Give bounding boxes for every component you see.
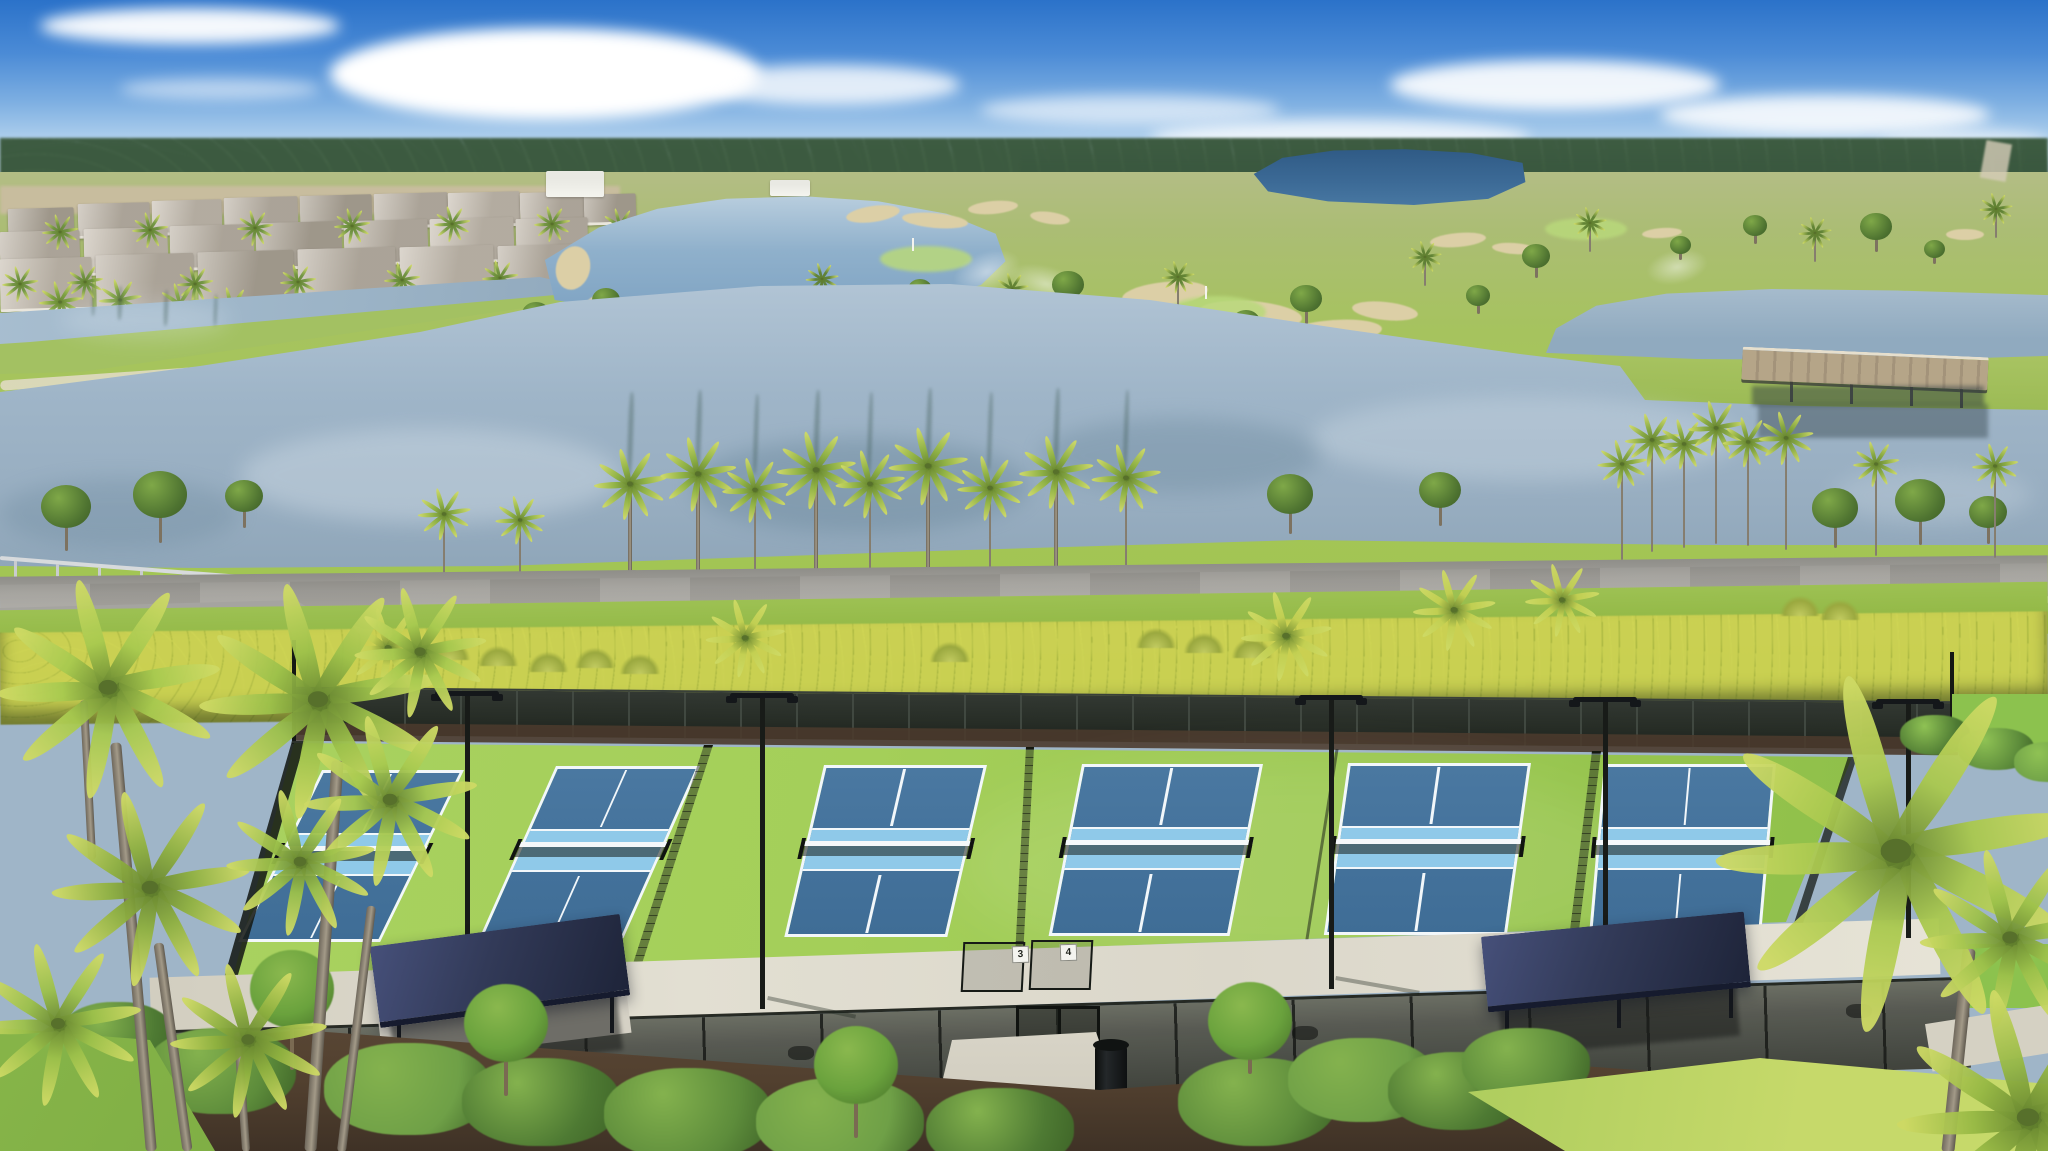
fence-corner-post: [292, 640, 296, 744]
bridge-shadow: [1752, 386, 1984, 406]
trash-can-lid: [1093, 1039, 1129, 1051]
court-number-plate-3: 3: [1012, 946, 1030, 964]
palm-trunk: [80, 700, 96, 860]
aerial-photo-pickleball-courts: 3 4: [0, 0, 2048, 1151]
bridge-reflection: [1758, 404, 1988, 438]
adjacent-court-sliver: [1952, 694, 2048, 752]
adjacent-court-sliver: [1968, 944, 2048, 1008]
distant-construction-area: [0, 186, 620, 214]
court-number-plate-4: 4: [1060, 944, 1078, 962]
